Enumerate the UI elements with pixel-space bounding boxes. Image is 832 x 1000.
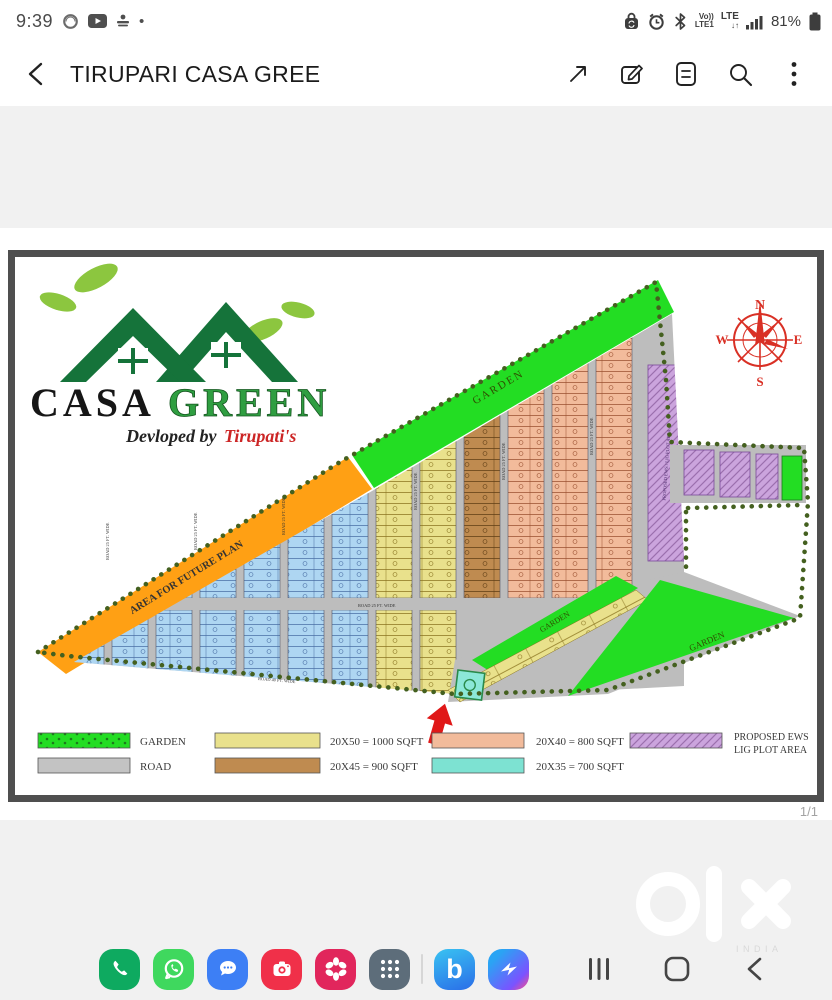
apps-grid-icon [379, 958, 401, 980]
messenger-bolt-icon [497, 957, 521, 981]
messages-app[interactable] [207, 949, 248, 990]
logo-developer: Tirupati's [224, 426, 296, 446]
legend-swatch-garden [38, 733, 130, 748]
alarm-icon [647, 12, 666, 31]
legend-swatch-700 [432, 758, 524, 773]
compass-n: N [755, 298, 765, 313]
handle-garden-block [782, 456, 802, 500]
youtube-icon [88, 14, 107, 28]
gallery-app[interactable] [315, 949, 356, 990]
casa-green-layout: CASA GREEN Devloped by Tirupati's N S [8, 250, 824, 802]
notification-icon [116, 14, 130, 28]
kebab-menu-icon [790, 60, 798, 88]
legend-road: ROAD [140, 761, 171, 773]
legend-900: 20X45 = 900 SQFT [330, 761, 418, 773]
recents-button[interactable] [583, 953, 615, 985]
olx-bar [706, 866, 722, 942]
network-indicator: LTE ↓↑ [721, 12, 739, 30]
logo-green: GREEN [168, 380, 330, 425]
svg-text:ROAD 25 FT. WIDE: ROAD 25 FT. WIDE [413, 472, 418, 510]
logo-tagline: Devloped by [125, 426, 217, 446]
status-left: 9:39 • [0, 11, 144, 32]
badge-icon [62, 13, 79, 30]
messages-icon [216, 957, 240, 981]
back-button[interactable] [22, 59, 52, 89]
back-nav-icon [744, 956, 766, 982]
status-bar: 9:39 • [0, 0, 832, 42]
clock: 9:39 [16, 11, 53, 32]
app-header: TIRUPARI CASA GREE [0, 42, 832, 106]
home-icon [663, 955, 691, 983]
search-button[interactable] [726, 60, 754, 88]
whatsapp-icon [161, 956, 187, 982]
battery-icon [808, 11, 822, 32]
back-nav-button[interactable] [739, 953, 771, 985]
legend-ews-2: LIG PLOT AREA [734, 745, 808, 756]
expand-button[interactable] [564, 60, 592, 88]
svg-text:ROAD 25 FT. WIDE: ROAD 25 FT. WIDE [193, 512, 198, 550]
svg-text:ROAD 25 FT. WIDE: ROAD 25 FT. WIDE [358, 603, 396, 608]
svg-text:ROAD 25 FT. WIDE: ROAD 25 FT. WIDE [105, 522, 110, 560]
olx-x [738, 876, 795, 933]
top-spacer [0, 106, 832, 228]
status-right: Vo)) LTE1 LTE ↓↑ 81% [623, 11, 832, 32]
legend-ews-1: PROPOSED EWS [734, 732, 809, 743]
ews-handle [670, 445, 806, 503]
bixby-letter: b [446, 954, 463, 985]
taskbar: b [0, 938, 832, 1000]
bixby-app[interactable]: b [434, 949, 475, 990]
camera-icon [270, 957, 294, 981]
back-icon [24, 61, 50, 87]
document-button[interactable] [672, 60, 700, 88]
legend-swatch-900 [215, 758, 320, 773]
flower-icon [323, 956, 349, 982]
camera-app[interactable] [261, 949, 302, 990]
plan-image[interactable]: CASA GREEN Devloped by Tirupati's N S [8, 250, 824, 802]
navigation-keys [583, 953, 771, 985]
legend-1000: 20X50 = 1000 SQFT [330, 736, 424, 748]
home-button[interactable] [661, 953, 693, 985]
phone-icon [109, 958, 131, 980]
page-title: TIRUPARI CASA GREE [70, 61, 320, 88]
olx-o [643, 879, 693, 929]
page-indicator: 1/1 [800, 804, 818, 819]
taskbar-divider [421, 954, 423, 984]
legend-800: 20X40 = 800 SQFT [536, 736, 624, 748]
svg-text:ROAD 25 FT. WIDE: ROAD 25 FT. WIDE [589, 417, 594, 455]
compass-e: E [794, 332, 803, 347]
legend-swatch-ews [630, 733, 722, 748]
legend-swatch-800 [432, 733, 524, 748]
document-icon [673, 60, 699, 88]
expand-icon [565, 61, 591, 87]
volte-indicator: Vo)) LTE1 [695, 13, 714, 29]
battery-percent: 81% [771, 13, 801, 30]
edit-icon [618, 60, 646, 88]
messenger-app[interactable] [488, 949, 529, 990]
whatsapp-app[interactable] [153, 949, 194, 990]
recents-icon [586, 956, 612, 982]
edit-button[interactable] [618, 60, 646, 88]
lock-sync-icon [623, 12, 640, 30]
apps-grid-button[interactable] [369, 949, 410, 990]
more-options-button[interactable] [780, 60, 808, 88]
legend-swatch-road [38, 758, 130, 773]
bluetooth-icon [673, 12, 688, 31]
phone-app[interactable] [99, 949, 140, 990]
logo-casa: CASA [30, 380, 155, 425]
svg-text:ROAD 25 FT. WIDE: ROAD 25 FT. WIDE [281, 497, 286, 535]
signal-icon [746, 13, 764, 30]
compass-w: W [716, 332, 729, 347]
legend-swatch-1000 [215, 733, 320, 748]
svg-text:ROAD 25 FT. WIDE: ROAD 25 FT. WIDE [501, 442, 506, 480]
phone-screen: 9:39 • [0, 0, 832, 1000]
legend-garden: GARDEN [140, 736, 186, 748]
compass-s: S [756, 374, 763, 389]
search-icon [727, 61, 754, 88]
notification-dot: • [139, 13, 144, 30]
legend-700: 20X35 = 700 SQFT [536, 761, 624, 773]
